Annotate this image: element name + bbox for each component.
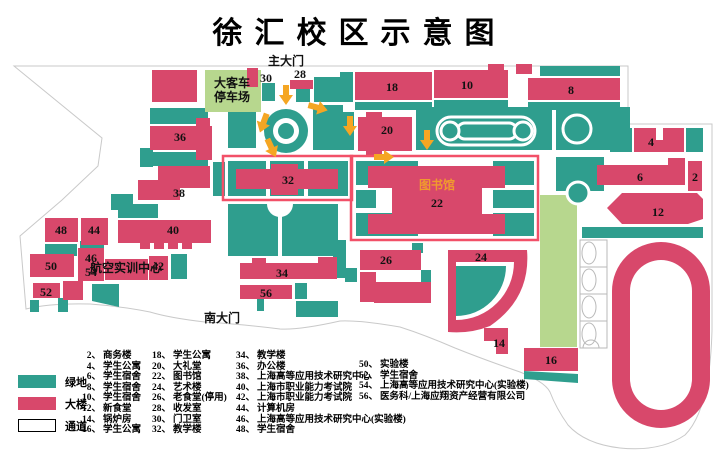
legend-item-path: 通道 [18,419,87,432]
directory-entry-name: 学生公寓 [103,425,141,436]
directory-entry-number: 42、 [233,393,255,404]
legend-swatch-building [18,397,56,410]
directory-entry-number: 30、 [149,415,171,426]
label-48: 48 [55,223,67,237]
directory-entry-name: 商务楼 [103,351,132,362]
legend-item-green: 绿地 [18,375,87,388]
directory-entry-number: 38、 [233,372,255,383]
directory-entry-number: 18、 [149,351,171,362]
sports-courts [580,240,607,348]
label-38: 38 [173,186,185,200]
directory-entry-number: 28、 [149,404,171,415]
directory-entry-name: 医务科/上海应翔资产经营有限公司 [380,392,525,403]
directory-entry-name: 艺术楼 [173,383,202,394]
directory-entry-name: 学生宿舍 [103,393,141,404]
directory-entry-name: 图书馆 [173,372,202,383]
label-18: 18 [386,80,398,94]
directory-entry: 18、 学生公寓 [149,351,227,362]
label-28: 28 [294,67,306,81]
label-52: 52 [40,285,52,299]
label-56: 56 [260,286,272,300]
label-46: 46 [85,251,97,265]
directory-entry-number: 34、 [233,351,255,362]
directory-entry-name: 锅炉房 [103,415,132,426]
label-34: 34 [276,266,288,280]
directory-entry: 14、 锅炉房 [79,415,141,426]
south-gate-label: 南大门 [204,310,240,325]
directory-column-1: 2、 商务楼 4、 学生公寓 6、 学生宿舍 8、 学生宿舍 10、 学生宿舍 [79,351,141,436]
directory-entry: 44、 计算机房 [233,404,406,415]
label-36: 36 [174,130,186,144]
directory-entry-name: 教学楼 [173,425,202,436]
directory-entry-name: 计算机房 [257,404,295,415]
directory-column-4: 50、 实验楼 52、 学生宿舍 54、 上海高等应用技术研究中心(实验楼) 5… [356,360,529,402]
label-50: 50 [45,259,57,273]
directory-entry: 12、 新食堂 [79,404,141,415]
directory-entry-number: 22、 [149,372,171,383]
directory-entry-number: 52、 [356,371,378,382]
directory-entry-number: 48、 [233,425,255,436]
green-strip [540,195,577,347]
legend-item-building: 大楼 [18,397,87,410]
main-gate-label: 主大门 [268,53,304,68]
label-26: 26 [380,253,392,267]
directory-entry-name: 上海高等应用技术研究中心 [257,372,371,383]
building-8 [528,78,620,100]
label-32: 32 [282,173,294,187]
directory-entry-name: 教学楼 [257,351,286,362]
directory-column-2: 18、 学生公寓 20、 大礼堂 22、 图书馆 24、 艺术楼 26、 老食堂… [149,351,227,436]
label-8: 8 [568,83,574,97]
directory-entry-number: 4、 [79,362,101,373]
directory-entry: 52、 学生宿舍 [356,371,529,382]
directory-entry: 28、 收发室 [149,404,227,415]
directory-entry-name: 学生宿舍 [380,371,418,382]
label-24: 24 [475,250,487,264]
directory-entry: 48、 学生宿舍 [233,425,406,436]
campus-map-page: 徐汇校区示意图 [0,0,719,461]
directory-entry: 56、 医务科/上海应翔资产经营有限公司 [356,392,529,403]
directory-entry: 22、 图书馆 [149,372,227,383]
label-20: 20 [381,123,393,137]
building-40 [118,220,211,243]
directory-entry-number: 12、 [79,404,101,415]
directory-entry-number: 26、 [149,393,171,404]
legend: 绿地 大楼 通道 [18,375,87,441]
directory-entry-number: 32、 [149,425,171,436]
directory-entry: 50、 实验楼 [356,360,529,371]
directory-entry-number: 8、 [79,383,101,394]
directory-entry-name: 上海高等应用技术研究中心(实验楼) [380,381,529,392]
directory-entry: 8、 学生宿舍 [79,383,141,394]
directory-entry-number: 14、 [79,415,101,426]
directory-entry: 4、 学生公寓 [79,362,141,373]
label-4: 4 [648,135,654,149]
directory-entry-name: 上海高等应用技术研究中心(实验楼) [257,415,406,426]
directory-entry-number: 2、 [79,351,101,362]
directory-entry-name: 上海市职业能力考试院 [257,383,352,394]
directory-entry: 6、 学生宿舍 [79,372,141,383]
directory-entry-name: 学生宿舍 [103,383,141,394]
directory-entry-number: 46、 [233,415,255,426]
directory-entry: 2、 商务楼 [79,351,141,362]
label-42: 42 [152,259,164,273]
label-44: 44 [88,223,100,237]
label-14: 14 [493,336,505,350]
directory-entry-number: 10、 [79,393,101,404]
directory-entry: 32、 教学楼 [149,425,227,436]
directory-entry-number: 20、 [149,362,171,373]
label-16: 16 [545,353,557,367]
directory-entry-name: 学生宿舍 [257,425,295,436]
directory-entry: 10、 学生宿舍 [79,393,141,404]
directory-entry-name: 实验楼 [380,360,409,371]
directory-entry-name: 门卫室 [173,415,202,426]
directory-entry-number: 40、 [233,383,255,394]
label-6: 6 [637,170,643,184]
directory-entry: 54、 上海高等应用技术研究中心(实验楼) [356,381,529,392]
directory-entry-name: 学生公寓 [173,351,211,362]
bus-parking-label-2: 停车场 [214,89,250,104]
directory-entry-number: 56、 [356,392,378,403]
building-34 [240,263,337,279]
directory-entry-number: 24、 [149,383,171,394]
directory-entry-name: 办公楼 [257,362,286,373]
label-40: 40 [167,223,179,237]
directory-entry-name: 大礼堂 [173,362,202,373]
label-22: 22 [431,196,443,210]
label-10: 10 [461,78,473,92]
directory-entry-number: 50、 [356,360,378,371]
directory-entry-name: 新食堂 [103,404,132,415]
directory-entry-name: 学生宿舍 [103,372,141,383]
directory-entry-name: 收发室 [173,404,202,415]
bus-parking-label-1: 大客车 [214,75,250,90]
building-28 [290,80,313,89]
legend-swatch-path [18,419,56,432]
library-label: 图书馆 [419,177,455,192]
label-12: 12 [652,205,664,219]
building-unlabeled [152,70,197,102]
directory-entry-name: 老食堂(停用) [173,393,227,404]
directory-entry: 26、 老食堂(停用) [149,393,227,404]
directory-entry-number: 16、 [79,425,101,436]
directory-entry-number: 44、 [233,404,255,415]
directory-entry: 24、 艺术楼 [149,383,227,394]
directory-entry: 16、 学生公寓 [79,425,141,436]
directory-entry-number: 6、 [79,372,101,383]
directory-entry-number: 54、 [356,381,378,392]
label-54: 54 [85,265,97,279]
directory-entry-name: 学生公寓 [103,362,141,373]
label-30: 30 [260,71,272,85]
directory-entry: 30、 门卫室 [149,415,227,426]
directory-entry-number: 36、 [233,362,255,373]
legend-swatch-green [18,375,56,388]
directory-entry-name: 上海市职业能力考试院 [257,393,352,404]
directory-entry: 20、 大礼堂 [149,362,227,373]
label-2: 2 [692,170,698,184]
directory-entry: 46、 上海高等应用技术研究中心(实验楼) [233,415,406,426]
